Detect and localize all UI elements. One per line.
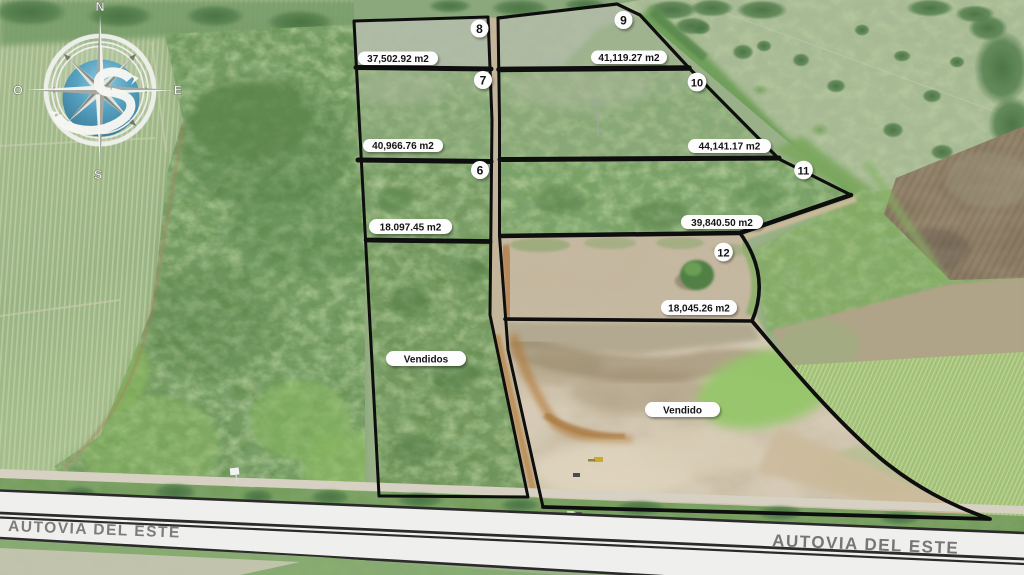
svg-text:44,141.17 m2: 44,141.17 m2	[699, 142, 761, 153]
svg-text:7: 7	[480, 73, 487, 87]
svg-text:6: 6	[477, 163, 484, 177]
svg-text:S: S	[94, 168, 102, 182]
svg-text:9: 9	[620, 13, 627, 27]
svg-text:39,840.50 m2: 39,840.50 m2	[691, 218, 753, 229]
svg-text:8: 8	[476, 22, 483, 36]
svg-text:11: 11	[798, 165, 810, 177]
svg-text:18,045.26 m2: 18,045.26 m2	[668, 304, 730, 315]
svg-text:40,966.76 m2: 40,966.76 m2	[372, 141, 434, 152]
svg-text:N: N	[95, 0, 104, 14]
svg-text:41,119.27 m2: 41,119.27 m2	[598, 53, 660, 64]
svg-text:O: O	[13, 84, 23, 98]
svg-text:18.097.45 m2: 18.097.45 m2	[380, 223, 442, 234]
svg-text:E: E	[174, 84, 182, 98]
svg-text:Vendidos: Vendidos	[404, 355, 449, 366]
svg-text:12: 12	[717, 247, 729, 259]
svg-text:37,502.92 m2: 37,502.92 m2	[367, 54, 429, 65]
svg-text:10: 10	[691, 77, 703, 89]
svg-text:Vendido: Vendido	[663, 406, 702, 417]
